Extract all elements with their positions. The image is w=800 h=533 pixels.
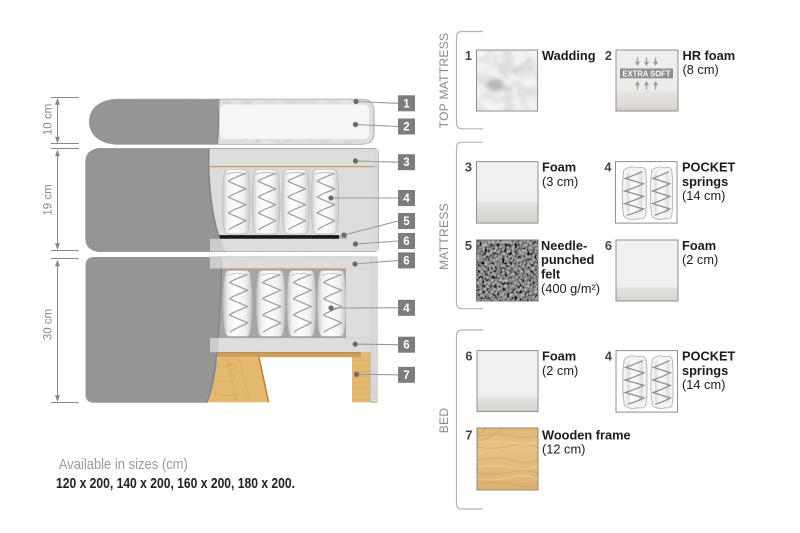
svg-text:Foam: Foam (542, 159, 576, 174)
svg-text:2: 2 (605, 48, 612, 63)
svg-text:TOP MATTRESS: TOP MATTRESS (437, 33, 451, 129)
svg-text:Needle-: Needle- (541, 238, 587, 253)
svg-text:(400 g/m²): (400 g/m²) (541, 281, 600, 296)
svg-text:(14 cm): (14 cm) (682, 377, 725, 392)
svg-text:6: 6 (465, 348, 472, 363)
svg-text:19 cm: 19 cm (43, 184, 55, 215)
svg-text:1: 1 (465, 48, 472, 63)
svg-text:Foam: Foam (682, 238, 716, 253)
svg-text:7: 7 (403, 370, 409, 382)
svg-text:felt: felt (541, 267, 561, 282)
svg-text:(8 cm): (8 cm) (683, 62, 719, 77)
svg-text:4: 4 (403, 303, 410, 315)
svg-text:Foam: Foam (542, 348, 576, 363)
svg-text:(14 cm): (14 cm) (682, 188, 725, 203)
svg-text:2: 2 (403, 122, 409, 134)
svg-text:EXTRA SOFT: EXTRA SOFT (623, 69, 671, 78)
svg-text:4: 4 (605, 348, 613, 363)
svg-text:BED: BED (437, 408, 451, 434)
svg-text:120 x 200, 140 x 200, 160 x 20: 120 x 200, 140 x 200, 160 x 200, 180 x 2… (56, 475, 295, 492)
svg-text:7: 7 (465, 427, 472, 442)
svg-text:springs: springs (682, 363, 728, 378)
svg-text:30 cm: 30 cm (43, 309, 55, 340)
svg-text:(2 cm): (2 cm) (682, 252, 718, 267)
svg-text:3: 3 (465, 159, 472, 174)
svg-text:springs: springs (682, 174, 728, 189)
svg-text:Wooden frame: Wooden frame (542, 427, 631, 442)
svg-text:POCKET: POCKET (682, 159, 736, 174)
svg-text:(3 cm): (3 cm) (542, 174, 578, 189)
svg-text:MATTRESS: MATTRESS (437, 203, 451, 270)
svg-text:3: 3 (403, 157, 409, 169)
svg-text:6: 6 (605, 238, 612, 253)
svg-text:punched: punched (541, 252, 594, 267)
svg-text:1: 1 (403, 98, 410, 110)
svg-text:5: 5 (465, 238, 472, 253)
svg-text:5: 5 (403, 216, 410, 228)
svg-text:Wadding: Wadding (542, 48, 596, 63)
svg-text:Available in sizes (cm): Available in sizes (cm) (59, 457, 188, 473)
svg-text:(2 cm): (2 cm) (542, 363, 578, 378)
svg-text:HR foam: HR foam (683, 48, 736, 63)
svg-text:6: 6 (403, 236, 409, 248)
svg-text:6: 6 (403, 340, 409, 352)
svg-text:10 cm: 10 cm (43, 104, 55, 135)
svg-text:6: 6 (403, 255, 409, 267)
svg-text:4: 4 (403, 193, 410, 205)
svg-text:POCKET: POCKET (682, 348, 736, 363)
svg-text:(12 cm): (12 cm) (542, 442, 585, 457)
svg-text:4: 4 (604, 159, 612, 174)
